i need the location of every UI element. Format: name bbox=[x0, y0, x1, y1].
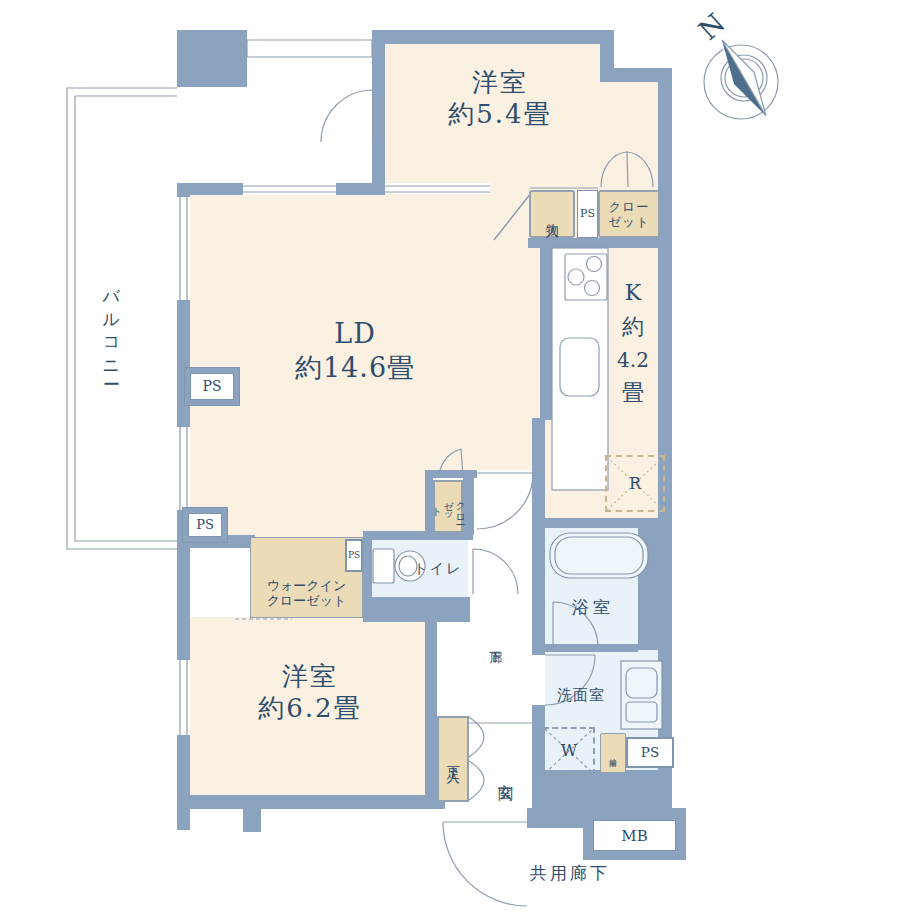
floor-plan: 物入 PS クロー ゼット PS PS ウォークイン クローゼット PS クロー… bbox=[0, 0, 920, 920]
wall-segment bbox=[372, 30, 385, 188]
label-kitchen: K 約 4.2 畳 bbox=[616, 268, 650, 418]
balcony-outline bbox=[67, 88, 177, 549]
compass-needle-dark bbox=[722, 40, 766, 116]
fridge-space: R bbox=[605, 455, 665, 512]
wall-segment bbox=[658, 68, 672, 808]
label-hallway: 廊下 bbox=[487, 620, 505, 664]
partition-gap bbox=[385, 183, 490, 194]
wall-segment bbox=[532, 518, 658, 528]
water-heater-box: 給湯 bbox=[600, 733, 626, 773]
label-bedroom-top: 洋室 約5.4畳 bbox=[400, 63, 600, 133]
ps-box-bottom-right: PS bbox=[626, 737, 674, 768]
compass-needle-light bbox=[722, 40, 766, 116]
bedroom-bottom-size: 約6.2畳 bbox=[258, 692, 361, 725]
ps-label: PS bbox=[348, 550, 360, 561]
ps-box-left-lower: PS bbox=[183, 508, 227, 542]
wic-line1: ウォークイン bbox=[267, 578, 347, 594]
label-common-corridor: 共用廊下 bbox=[515, 862, 625, 886]
window-gap bbox=[243, 183, 336, 195]
ps-box-left-upper: PS bbox=[185, 368, 239, 405]
label-living-dining: LD 約14.6畳 bbox=[255, 313, 455, 388]
bedroom-top-size: 約5.4畳 bbox=[448, 98, 551, 131]
outside-corner-patch bbox=[612, 30, 672, 70]
ps-label: PS bbox=[196, 517, 214, 533]
meter-box-label: MB bbox=[621, 827, 647, 845]
meter-box: MB bbox=[593, 820, 676, 851]
kitchen-l2: 約 bbox=[617, 310, 649, 344]
wall-segment bbox=[336, 183, 385, 195]
wall-segment bbox=[638, 528, 658, 650]
bath-floor bbox=[535, 528, 638, 648]
compass-icon bbox=[704, 40, 778, 119]
ld-size: 約14.6畳 bbox=[295, 351, 415, 385]
storage-monoire-label: 物入 bbox=[544, 213, 560, 215]
window-gap bbox=[177, 197, 190, 300]
storage-closet-small: クローゼット bbox=[433, 480, 463, 533]
washer-space: W bbox=[543, 727, 595, 775]
label-bath: 浴室 bbox=[562, 596, 624, 620]
label-toilet: トイレ bbox=[410, 558, 466, 580]
ps-label: PS bbox=[580, 207, 595, 220]
window-gap bbox=[177, 427, 190, 510]
closet-top-line2: ゼット bbox=[608, 214, 649, 229]
wall-segment bbox=[177, 30, 247, 87]
kitchen-l4: 畳 bbox=[617, 376, 649, 410]
wall-segment bbox=[527, 808, 587, 828]
wall-segment bbox=[425, 470, 477, 478]
label-washroom: 洗面室 bbox=[548, 684, 614, 706]
ld-name: LD bbox=[295, 317, 415, 351]
ps-box-top: PS bbox=[577, 190, 598, 238]
wall-segment bbox=[177, 795, 445, 809]
closet-top-line1: クロー bbox=[608, 199, 649, 214]
storage-monoire: 物入 bbox=[529, 190, 575, 238]
kitchen-l3: 4.2 bbox=[617, 345, 649, 376]
washer-label: W bbox=[561, 741, 577, 760]
wall-segment bbox=[540, 240, 552, 420]
label-bedroom-bottom: 洋室 約6.2畳 bbox=[210, 657, 410, 727]
wall-segment bbox=[545, 644, 638, 652]
window-gap bbox=[177, 660, 190, 735]
ps-label: PS bbox=[202, 378, 221, 395]
bedroom-top-name: 洋室 bbox=[448, 66, 551, 99]
label-balcony: バルコニー bbox=[100, 243, 122, 413]
kitchen-l1: K bbox=[617, 276, 649, 310]
wall-segment bbox=[372, 30, 614, 44]
ps-label: PS bbox=[641, 744, 659, 760]
wic-line2: クローゼット bbox=[267, 593, 347, 609]
fridge-label: R bbox=[629, 474, 641, 493]
compass-north-label: N bbox=[688, 3, 736, 51]
door-gap-washroom bbox=[532, 655, 545, 705]
bedroom-bottom-name: 洋室 bbox=[258, 660, 361, 693]
closet-small-label: クローゼット bbox=[430, 489, 466, 524]
shoe-box-label: 下足入 bbox=[445, 756, 461, 762]
wall-segment bbox=[177, 183, 243, 195]
storage-shoe-box: 下足入 bbox=[437, 716, 469, 802]
wall-segment bbox=[243, 806, 261, 832]
wall-segment bbox=[425, 597, 437, 802]
wall-segment bbox=[532, 418, 545, 655]
wall-segment bbox=[363, 597, 470, 622]
storage-closet-top: クロー ゼット bbox=[598, 190, 660, 238]
ps-box-middle: PS bbox=[345, 539, 363, 572]
label-entrance: 玄関 bbox=[494, 748, 516, 802]
